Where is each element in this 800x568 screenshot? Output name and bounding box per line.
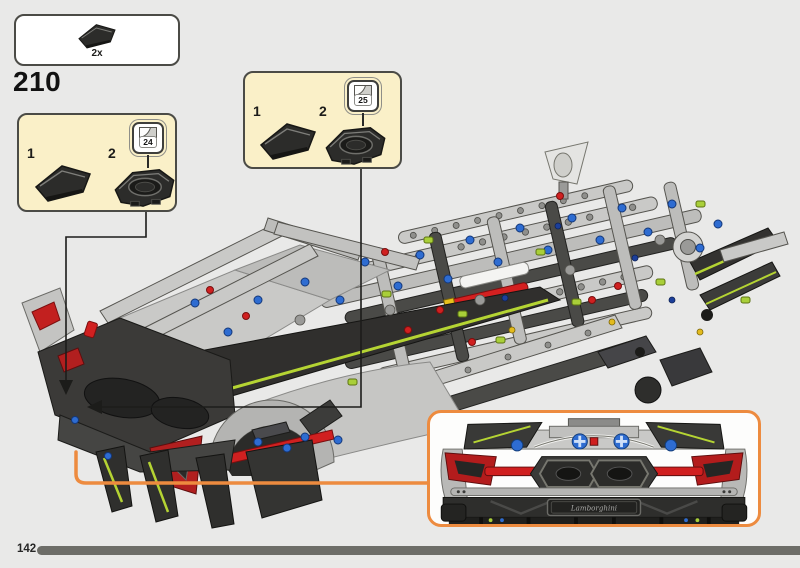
inset-leader-line (76, 452, 430, 483)
callout-box-sticker-25: 1 2 25 (243, 71, 402, 169)
sticker-number: 24 (139, 136, 156, 148)
wedge-piece-2-sticker-icon (323, 123, 389, 167)
wedge-piece-1-icon (257, 120, 319, 162)
brand-script: Lamborghini (570, 504, 617, 513)
instruction-page: 2x 210 1 2 24 1 2 25 (0, 0, 800, 568)
wedge-piece-1-icon (32, 162, 94, 204)
page-number: 142 (17, 543, 36, 555)
progress-bar (37, 546, 800, 555)
step-number: 210 (13, 66, 61, 98)
sticker-number: 25 (354, 94, 371, 106)
sticker-badge-25: 25 (347, 80, 379, 112)
callout-box-sticker-24: 1 2 24 (17, 113, 177, 212)
quantity-label: 2x (91, 48, 102, 59)
wedge-piece-2-sticker-icon (113, 165, 177, 209)
rear-view-illustration: Lamborghini (430, 413, 758, 524)
placement-arrow-down (59, 380, 73, 395)
sticker-badge-24: 24 (132, 122, 164, 154)
item-1-label: 1 (27, 145, 35, 161)
wedge-piece-icon (76, 22, 118, 50)
item-1-label: 1 (253, 103, 261, 119)
item-2-label: 2 (108, 145, 116, 161)
rear-view-inset: Lamborghini (427, 410, 761, 527)
parts-quantity-box: 2x (14, 14, 180, 66)
item-2-label: 2 (319, 103, 327, 119)
placement-arrow-left (87, 400, 102, 414)
